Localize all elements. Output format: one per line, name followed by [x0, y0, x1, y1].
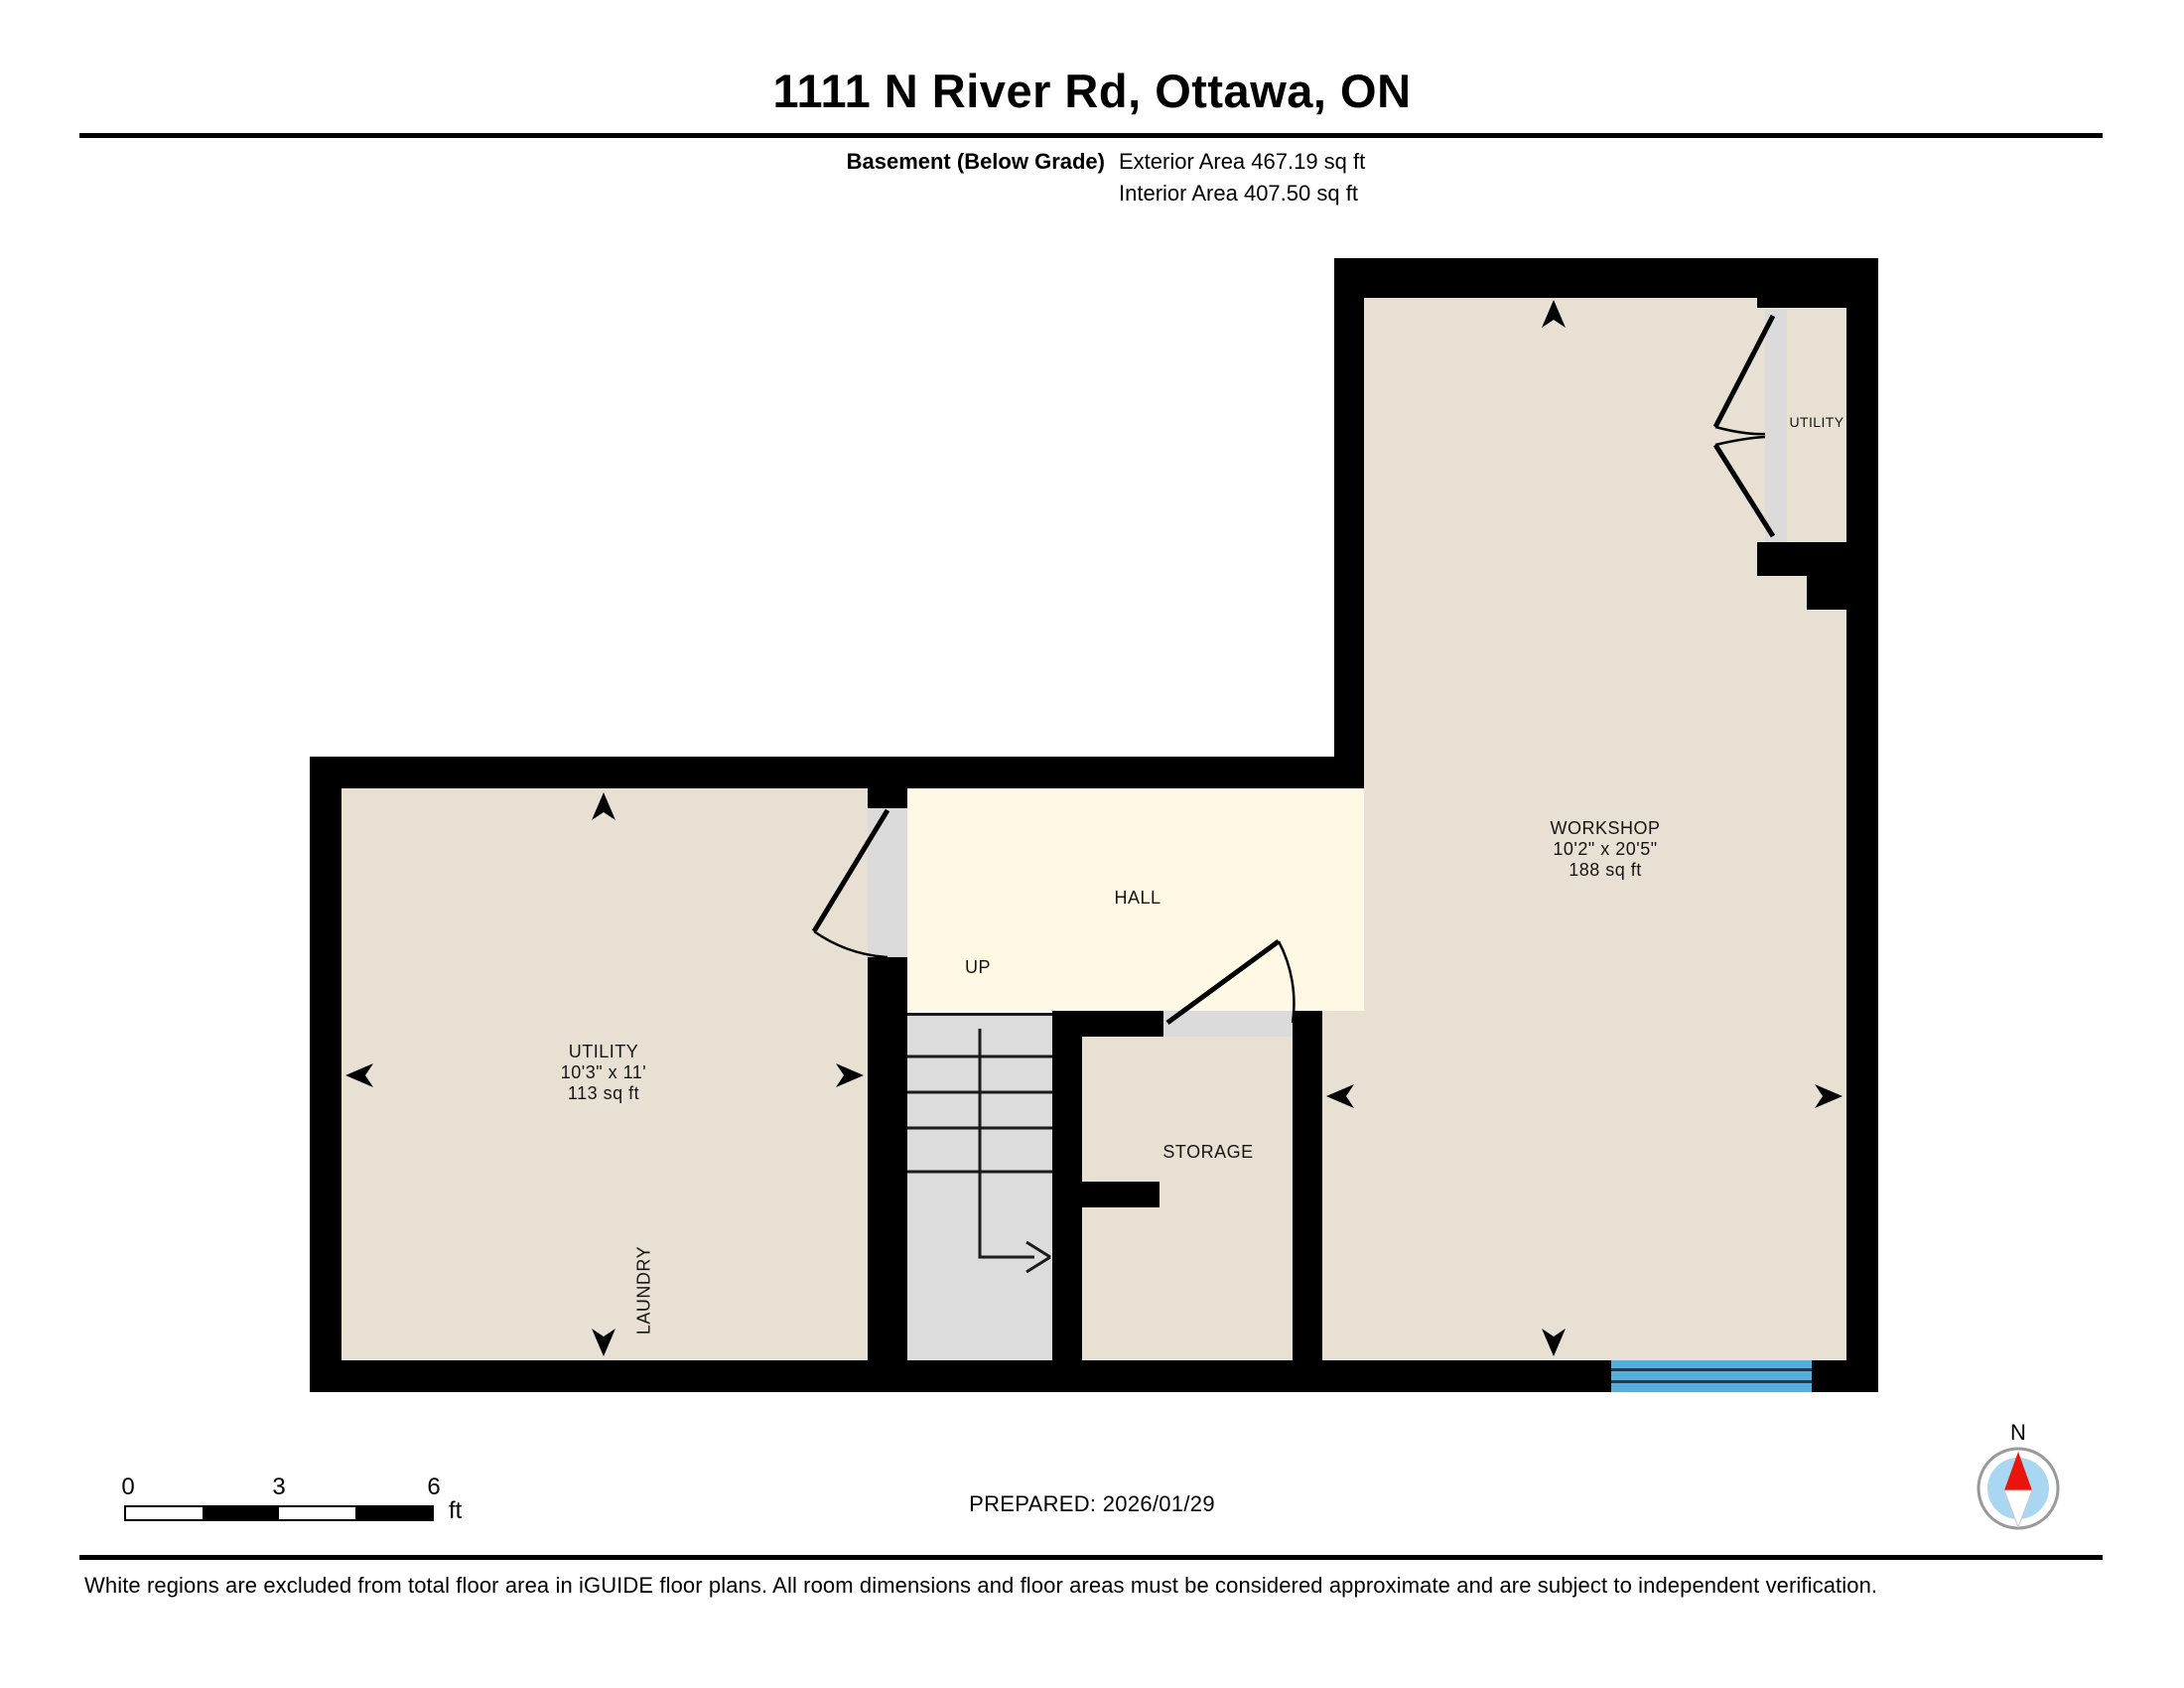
- window-pane-line: [1611, 1380, 1812, 1383]
- door-threshold-utility: [868, 808, 907, 957]
- footer-divider: [79, 1555, 2103, 1560]
- title-divider: [79, 133, 2103, 138]
- wall: [1052, 1011, 1082, 1360]
- interior-area-label: Interior Area 407.50 sq ft: [1119, 181, 1358, 207]
- basement-window: [1611, 1360, 1812, 1392]
- compass-needle-south-icon: [2004, 1490, 2032, 1527]
- compass-needle-north-icon: [2004, 1452, 2032, 1490]
- stairs-up-label: UP: [928, 957, 1027, 978]
- hall-room-label: HALL: [1038, 888, 1237, 909]
- room-area: 113 sq ft: [455, 1083, 752, 1104]
- window-pane-line: [1611, 1368, 1812, 1371]
- room-dimensions: 10'2" x 20'5": [1456, 839, 1754, 860]
- compass: [1979, 1449, 2058, 1528]
- scale-tick-3: 3: [264, 1474, 294, 1501]
- compass-north-label: N: [1988, 1420, 2048, 1446]
- compass-ring: [1979, 1449, 2058, 1528]
- door-threshold-storage: [1163, 1011, 1293, 1037]
- room-workshop-annex: [1322, 1011, 1364, 1360]
- wall: [1757, 258, 1846, 308]
- wall: [1082, 1182, 1160, 1207]
- workshop-room-label: WORKSHOP 10'2" x 20'5" 188 sq ft: [1456, 818, 1754, 881]
- room-name: UTILITY: [455, 1042, 752, 1062]
- room-stairs: [907, 1013, 1052, 1360]
- scale-unit-label: ft: [449, 1497, 462, 1525]
- scale-bar-segment: [279, 1507, 355, 1519]
- page-title: 1111 N River Rd, Ottawa, ON: [0, 64, 2184, 118]
- room-dimensions: 10'3" x 11': [455, 1062, 752, 1083]
- room-area: 188 sq ft: [1456, 860, 1754, 881]
- scale-tick-6: 6: [419, 1474, 449, 1501]
- utility-room-label: UTILITY 10'3" x 11' 113 sq ft: [455, 1042, 752, 1104]
- room-name: WORKSHOP: [1456, 818, 1754, 839]
- wall: [1334, 258, 1364, 788]
- scale-tick-0: 0: [113, 1474, 143, 1501]
- floor-type-label: Basement (Below Grade): [596, 149, 1105, 175]
- scale-bar: [124, 1505, 434, 1521]
- scale-bar-segment: [203, 1507, 279, 1519]
- wall: [1807, 566, 1878, 610]
- scale-bar-segment: [126, 1507, 203, 1519]
- scale-bar-segment: [355, 1507, 432, 1519]
- storage-room-label: STORAGE: [1109, 1142, 1307, 1163]
- disclaimer-text: White regions are excluded from total fl…: [84, 1573, 1971, 1599]
- prepared-date: PREPARED: 2026/01/29: [893, 1491, 1291, 1517]
- wall: [310, 757, 1364, 788]
- compass-face: [1987, 1458, 2049, 1519]
- utility-closet-label: UTILITY: [1765, 414, 1868, 430]
- wall: [310, 757, 341, 1392]
- wall: [1082, 1011, 1163, 1037]
- wall: [1293, 1011, 1322, 1360]
- laundry-room-label: LAUNDRY: [634, 1192, 655, 1390]
- exterior-area-label: Exterior Area 467.19 sq ft: [1119, 149, 1365, 175]
